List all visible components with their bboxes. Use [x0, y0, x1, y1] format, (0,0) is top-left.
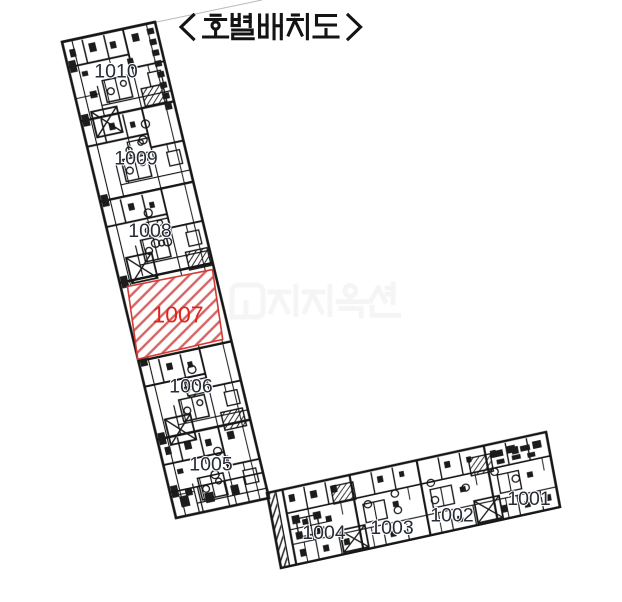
svg-text:1008: 1008 — [128, 220, 171, 242]
svg-text:1009: 1009 — [114, 148, 157, 170]
svg-text:1010: 1010 — [94, 61, 138, 83]
svg-text:1002: 1002 — [430, 505, 473, 527]
svg-text:1006: 1006 — [169, 376, 212, 398]
svg-text:1007: 1007 — [152, 301, 203, 327]
svg-text:1003: 1003 — [370, 517, 413, 539]
svg-text:1004: 1004 — [302, 522, 346, 544]
svg-text:1001: 1001 — [507, 488, 550, 510]
svg-text:1005: 1005 — [189, 454, 233, 476]
